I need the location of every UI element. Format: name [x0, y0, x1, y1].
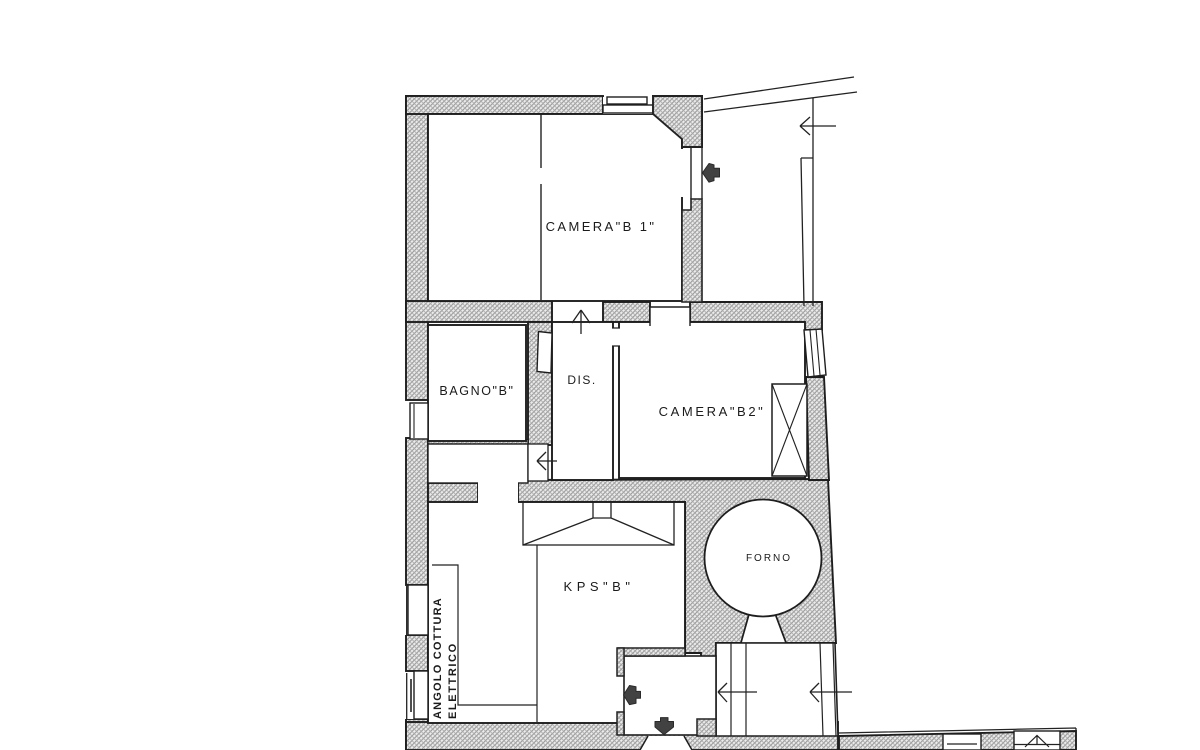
svg-text:DIS.: DIS. — [567, 373, 596, 387]
svg-text:CAMERA"B2": CAMERA"B2" — [659, 404, 766, 419]
svg-text:KPS"B": KPS"B" — [564, 579, 635, 594]
svg-text:ELETTRICO: ELETTRICO — [447, 642, 459, 719]
svg-text:FORNO: FORNO — [746, 553, 792, 564]
svg-text:ANGOLO COTTURA: ANGOLO COTTURA — [432, 597, 444, 719]
svg-text:BAGNO"B": BAGNO"B" — [439, 384, 514, 398]
svg-text:CAMERA"B 1": CAMERA"B 1" — [546, 219, 657, 234]
